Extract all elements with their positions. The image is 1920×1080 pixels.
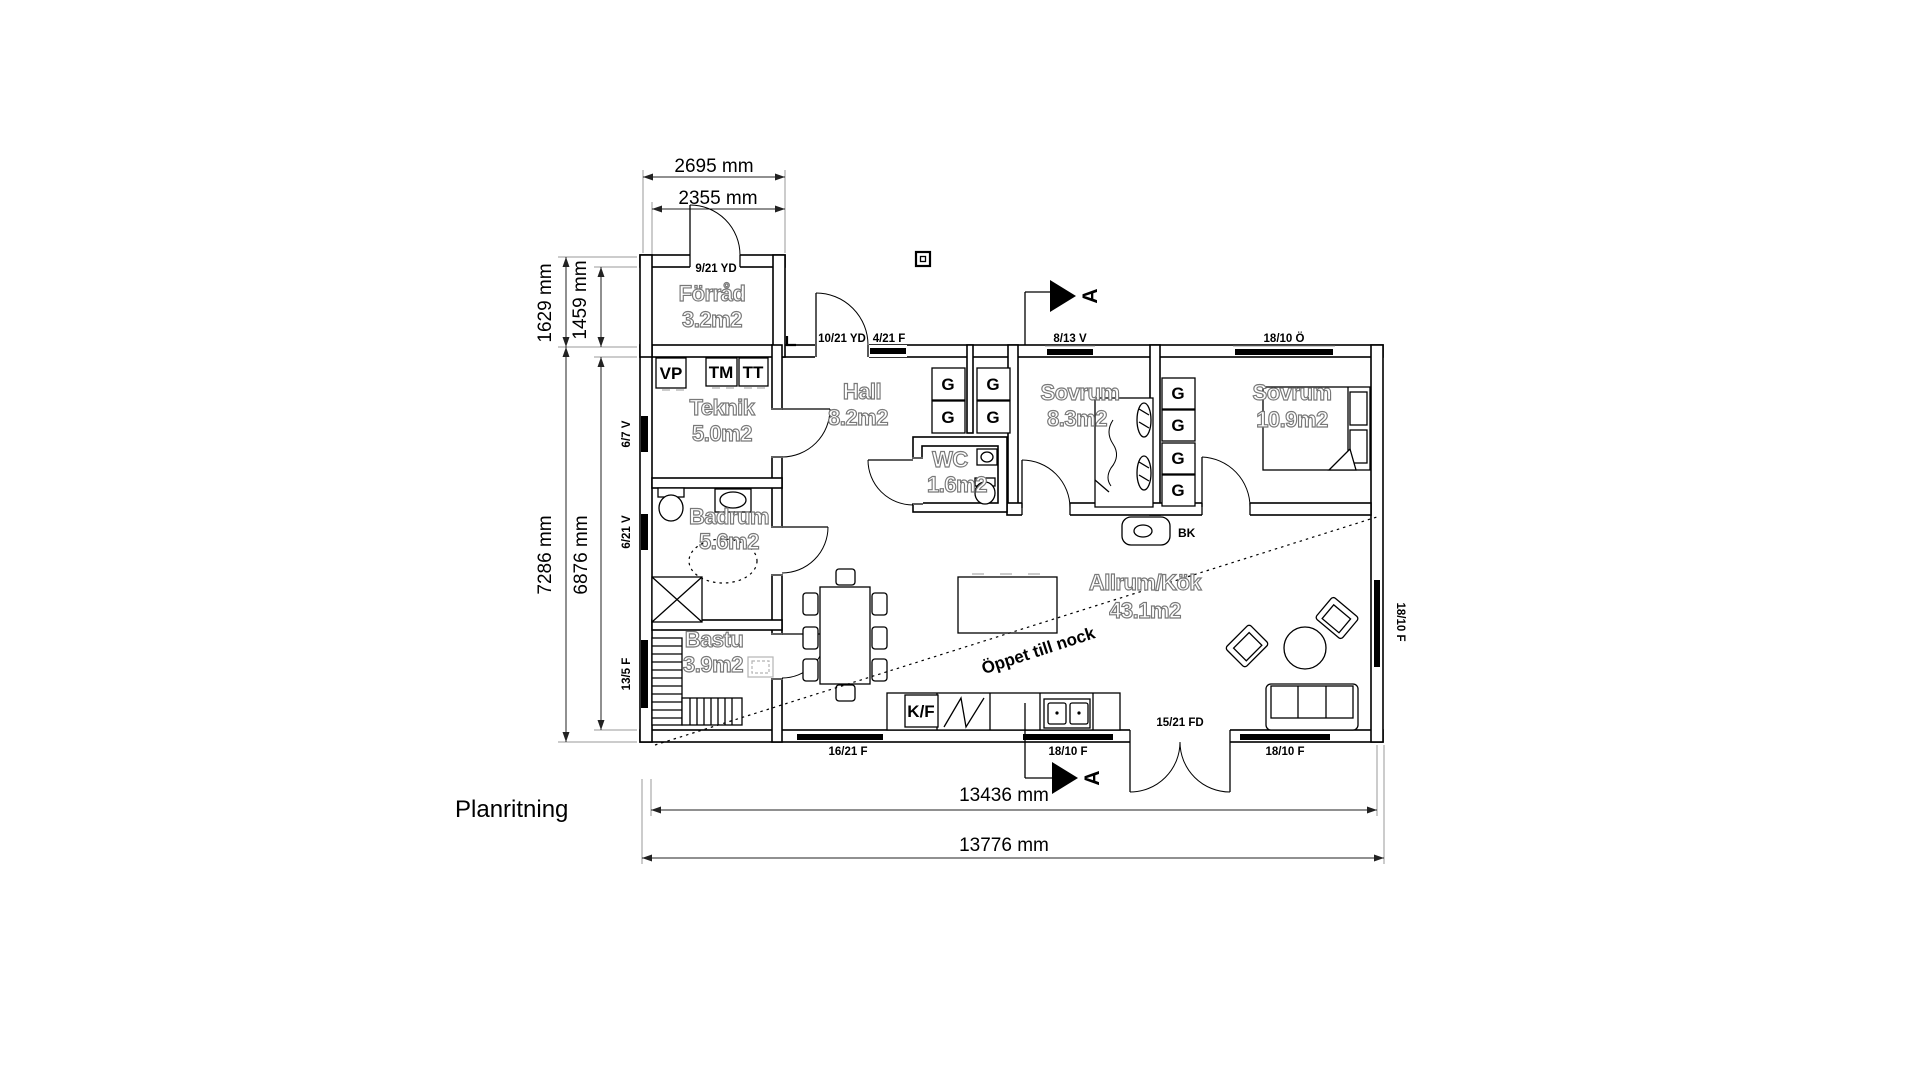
door-terrace-left [1130,742,1180,792]
window-sovrum1 [1047,349,1093,355]
room-sovrum2-area: 10.9m2 [1256,407,1328,432]
toilet-bowl [659,495,683,521]
heat-pump-label: VP [660,364,683,383]
annex-wall-east [773,255,785,357]
code-entry-window: 4/21 F [873,333,906,345]
wardrobe-label: G [941,375,954,394]
room-hall-area: 8.2m2 [828,405,888,430]
window-dining [797,734,883,740]
door-badrum [782,527,828,573]
room-wc-area: 1.6m2 [927,472,987,497]
section-letter: A [1079,288,1102,303]
dim-annex-inner-depth: 1459 mm [570,260,591,339]
room-sovrum1-area: 8.3m2 [1047,406,1107,431]
code-sovrum1-window: 8/13 V [1053,333,1087,345]
window-kitchen [1023,734,1113,740]
door-sovrum2 [1202,457,1250,507]
room-teknik-area: 5.0m2 [692,421,752,446]
door-terrace-right [1180,742,1230,792]
wall-east [1371,345,1383,742]
armchair-1 [1315,596,1359,639]
dim-house-outer-depth: 7286 mm [535,515,556,594]
room-badrum-area: 5.6m2 [699,529,759,554]
room-sovrum1-name: Sovrum [1041,380,1120,405]
wardrobe-label: G [986,375,999,394]
code-bastu-window: 13/5 F [621,658,633,691]
dim-annex-outer-width: 2695 mm [674,156,753,177]
code-sovrum2-window: 18/10 Ö [1264,332,1305,345]
code-dining-window: 16/21 F [829,746,868,758]
living-room-furniture [1225,596,1359,730]
room-hall-name: Hall [843,379,881,404]
code-storage-door: 9/21 YD [695,263,736,275]
code-terrace-door: 15/21 FD [1156,717,1203,729]
wardrobe-label: G [1171,481,1184,500]
door-storage [690,205,740,255]
fireplace: BK [1122,517,1196,545]
window-teknik [641,416,648,452]
code-sofa-window: 18/10 F [1266,746,1305,758]
dim-house-outer-width: 13776 mm [959,835,1049,856]
teknik-appliances: VP TM TT [656,358,768,390]
wardrobe-label: G [941,408,954,427]
fridge-freezer-label: K/F [907,702,934,721]
room-allrum-name: Allrum/Kök [1089,570,1203,595]
dining-table [820,587,870,684]
room-badrum-name: Badrum [689,504,769,529]
room-forrad-area: 3.2m2 [682,307,742,332]
window-east [1374,580,1380,667]
window-sofa [1240,734,1330,740]
washer-label: TM [709,363,734,382]
door-wc [868,460,913,505]
fireplace-label: BK [1178,526,1196,540]
section-letter: A [1081,770,1104,785]
section-arrow-icon [1050,280,1076,312]
dim-annex-outer-depth: 1629 mm [535,263,556,342]
drawing-title: Planritning [455,796,568,823]
room-wc-name: WC [932,447,968,472]
coffee-table [1284,627,1326,669]
room-teknik-name: Teknik [689,395,755,420]
code-kitchen-window: 18/10 F [1049,746,1088,758]
door-teknik [782,409,830,457]
kitchen-island [958,577,1057,633]
room-allrum-area: 43.1m2 [1109,598,1181,623]
window-bastu [641,640,648,708]
wardrobe-label: G [1171,384,1184,403]
room-bastu-area: 3.9m2 [683,652,743,677]
dining-set [803,569,887,701]
wall-badrum-north [652,478,782,488]
code-east-window: 18/10 F [1394,603,1406,642]
wardrobe-label: G [1171,416,1184,435]
dim-house-inner-width: 13436 mm [959,785,1049,806]
annex-wall-west [640,255,652,357]
floor-plan-drawing: 2695 mm 2355 mm 1629 mm 1459 mm 7286 mm … [0,0,1920,1080]
code-badrum-window: 6/21 V [621,515,633,549]
wall-corner-mark [787,336,796,345]
window-badrum [641,514,648,550]
sovrum2-wardrobes: G G G G [1162,378,1195,506]
window-sovrum2 [1235,349,1333,355]
extension-lines [558,170,1384,864]
section-arrow-icon [1052,762,1078,794]
sauna-bench-left [652,638,682,725]
room-sovrum2-name: Sovrum [1253,380,1332,405]
room-bastu-name: Bastu [685,627,744,652]
sauna-bench-bottom [682,698,742,725]
dim-house-inner-depth: 6876 mm [571,515,592,594]
armchair-2 [1225,624,1269,668]
chimney-symbol [916,252,930,266]
door-sovrum1 [1022,460,1070,508]
wardrobe-label: G [1171,449,1184,468]
code-entry-door: 10/21 YD [818,333,866,345]
window-entry [870,348,906,354]
wall-closet-divider [967,345,973,433]
dryer-label: TT [743,363,764,382]
room-forrad-name: Förråd [679,281,746,306]
code-teknik-window: 6/7 V [621,420,633,447]
wardrobe-label: G [986,408,999,427]
